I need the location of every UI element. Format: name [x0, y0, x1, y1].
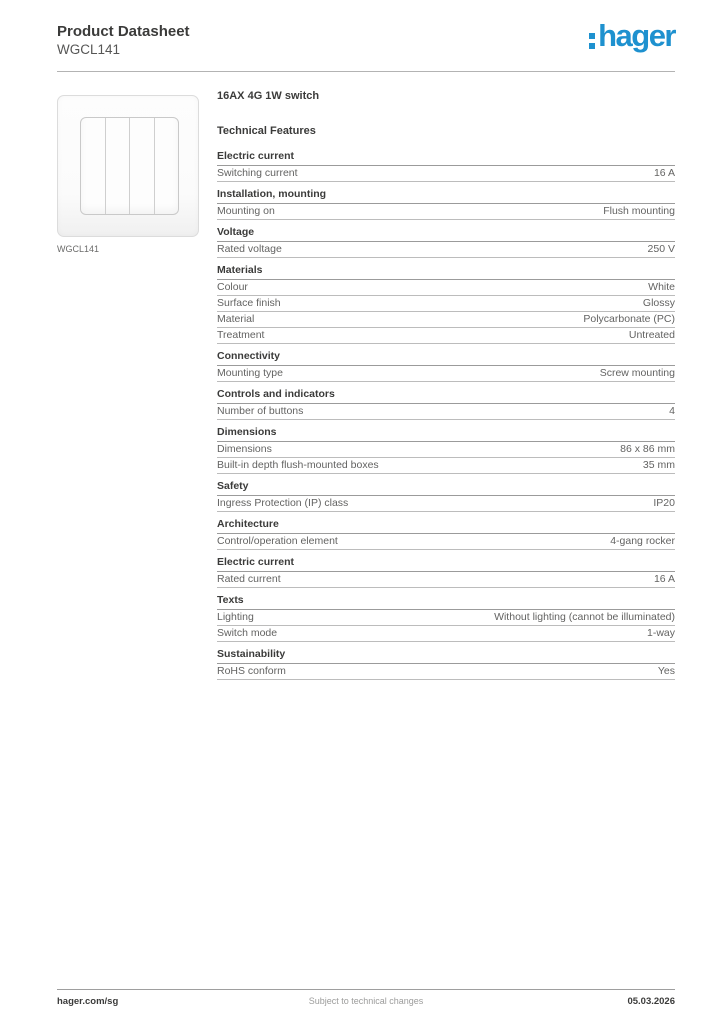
spec-row: Surface finish Glossy: [217, 296, 675, 312]
spec-value: White: [648, 282, 675, 293]
spec-row: Colour White: [217, 280, 675, 296]
spec-label: Ingress Protection (IP) class: [217, 498, 348, 509]
spec-section-heading: Sustainability: [217, 649, 675, 664]
spec-label: Material: [217, 314, 254, 325]
spec-row: Switch mode 1-way: [217, 626, 675, 642]
spec-section-heading: Materials: [217, 265, 675, 280]
rocker-segment: [129, 118, 154, 214]
spec-row: Mounting on Flush mounting: [217, 204, 675, 220]
switch-rocker-illustration: [80, 117, 179, 215]
footer-divider: [57, 989, 675, 990]
spec-section: Texts Lighting Without lighting (cannot …: [217, 595, 675, 642]
spec-section-heading: Electric current: [217, 151, 675, 166]
spec-row: Dimensions 86 x 86 mm: [217, 442, 675, 458]
spec-section: Materials Colour White Surface finish Gl…: [217, 265, 675, 344]
rocker-segment: [105, 118, 130, 214]
spec-section-heading: Dimensions: [217, 427, 675, 442]
spec-value: 4: [669, 406, 675, 417]
product-image-column: WGCL141: [57, 95, 199, 254]
spec-row: Rated current 16 A: [217, 572, 675, 588]
header-divider: [57, 71, 675, 72]
spec-value: IP20: [653, 498, 675, 509]
page-title: Product Datasheet: [57, 22, 190, 41]
spec-section-heading: Controls and indicators: [217, 389, 675, 404]
spec-section-heading: Connectivity: [217, 351, 675, 366]
spec-label: Lighting: [217, 612, 254, 623]
spec-section-heading: Architecture: [217, 519, 675, 534]
product-reference: WGCL141: [57, 41, 190, 58]
datasheet-page: Product Datasheet WGCL141 hager WGCL141 …: [0, 0, 724, 1024]
rocker-segment: [154, 118, 179, 214]
spec-label: Built-in depth flush-mounted boxes: [217, 460, 379, 471]
spec-row: RoHS conform Yes: [217, 664, 675, 680]
logo-colon-icon: [589, 33, 595, 49]
spec-section: Architecture Control/operation element 4…: [217, 519, 675, 550]
spec-row: Ingress Protection (IP) class IP20: [217, 496, 675, 512]
spec-label: Mounting type: [217, 368, 283, 379]
header-titles: Product Datasheet WGCL141: [57, 22, 190, 58]
spec-section: Controls and indicators Number of button…: [217, 389, 675, 420]
spec-value: 1-way: [647, 628, 675, 639]
spec-section-heading: Electric current: [217, 557, 675, 572]
spec-value: Polycarbonate (PC): [583, 314, 675, 325]
spec-label: Number of buttons: [217, 406, 303, 417]
spec-row: Material Polycarbonate (PC): [217, 312, 675, 328]
spec-label: Control/operation element: [217, 536, 338, 547]
spec-value: 16 A: [654, 574, 675, 585]
spec-label: Switching current: [217, 168, 298, 179]
spec-row: Lighting Without lighting (cannot be ill…: [217, 610, 675, 626]
spec-value: 35 mm: [643, 460, 675, 471]
spec-value: Flush mounting: [603, 206, 675, 217]
spec-label: Dimensions: [217, 444, 272, 455]
spec-label: RoHS conform: [217, 666, 286, 677]
spec-section: Sustainability RoHS conform Yes: [217, 649, 675, 680]
spec-row: Treatment Untreated: [217, 328, 675, 344]
spec-label: Rated current: [217, 574, 281, 585]
spec-value: Without lighting (cannot be illuminated): [494, 612, 675, 623]
specs-column: 16AX 4G 1W switch Technical Features Ele…: [217, 91, 675, 687]
spec-label: Switch mode: [217, 628, 277, 639]
spec-value: 4-gang rocker: [610, 536, 675, 547]
spec-row: Mounting type Screw mounting: [217, 366, 675, 382]
footer-disclaimer: Subject to technical changes: [57, 996, 675, 1006]
spec-label: Colour: [217, 282, 248, 293]
spec-value: Screw mounting: [600, 368, 675, 379]
spec-section-heading: Installation, mounting: [217, 189, 675, 204]
spec-value: Untreated: [629, 330, 675, 341]
product-image-caption: WGCL141: [57, 244, 199, 254]
spec-sections: Electric current Switching current 16 A …: [217, 151, 675, 680]
spec-section: Electric current Rated current 16 A: [217, 557, 675, 588]
spec-section: Safety Ingress Protection (IP) class IP2…: [217, 481, 675, 512]
spec-section: Dimensions Dimensions 86 x 86 mm Built-i…: [217, 427, 675, 474]
spec-value: Glossy: [643, 298, 675, 309]
spec-section: Electric current Switching current 16 A: [217, 151, 675, 182]
spec-section: Voltage Rated voltage 250 V: [217, 227, 675, 258]
spec-row: Built-in depth flush-mounted boxes 35 mm: [217, 458, 675, 474]
spec-section-heading: Texts: [217, 595, 675, 610]
hager-logo: hager: [589, 24, 675, 49]
technical-features-heading: Technical Features: [217, 126, 675, 137]
spec-value: 250 V: [648, 244, 675, 255]
spec-label: Rated voltage: [217, 244, 282, 255]
spec-row: Control/operation element 4-gang rocker: [217, 534, 675, 550]
spec-value: 16 A: [654, 168, 675, 179]
product-image: [57, 95, 199, 237]
spec-label: Surface finish: [217, 298, 281, 309]
footer: hager.com/sg Subject to technical change…: [57, 996, 675, 1007]
spec-value: 86 x 86 mm: [620, 444, 675, 455]
spec-section: Installation, mounting Mounting on Flush…: [217, 189, 675, 220]
spec-row: Number of buttons 4: [217, 404, 675, 420]
spec-value: Yes: [658, 666, 675, 677]
spec-label: Mounting on: [217, 206, 275, 217]
spec-row: Switching current 16 A: [217, 166, 675, 182]
header: Product Datasheet WGCL141 hager: [57, 22, 675, 58]
spec-label: Treatment: [217, 330, 264, 341]
product-name: 16AX 4G 1W switch: [217, 91, 675, 102]
spec-section-heading: Safety: [217, 481, 675, 496]
spec-section: Connectivity Mounting type Screw mountin…: [217, 351, 675, 382]
spec-section-heading: Voltage: [217, 227, 675, 242]
spec-row: Rated voltage 250 V: [217, 242, 675, 258]
rocker-segment: [81, 118, 105, 214]
logo-wordmark: hager: [598, 24, 675, 48]
